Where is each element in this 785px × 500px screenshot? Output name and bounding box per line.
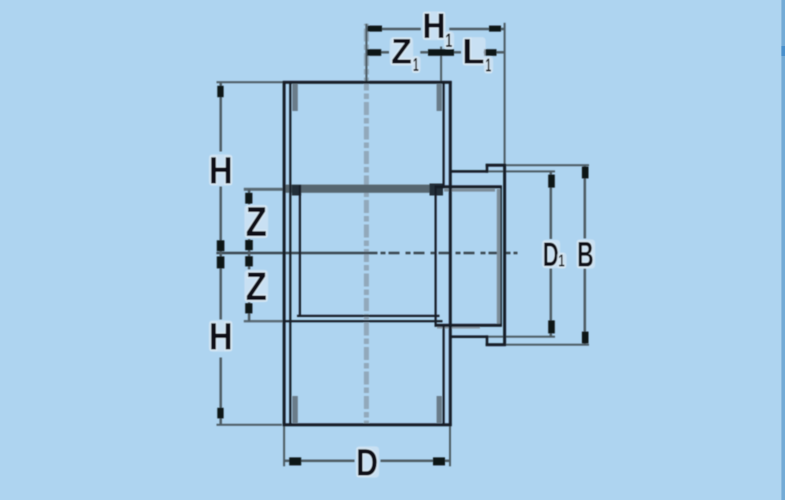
- svg-text:Z: Z: [246, 200, 267, 246]
- svg-text:D: D: [356, 442, 378, 484]
- svg-text:1: 1: [485, 55, 491, 76]
- svg-text:H: H: [209, 149, 233, 192]
- svg-text:B: B: [577, 235, 594, 274]
- svg-text:Z: Z: [246, 263, 267, 308]
- svg-text:Z: Z: [391, 33, 412, 72]
- svg-text:1: 1: [445, 29, 452, 52]
- svg-text:1: 1: [413, 55, 419, 76]
- svg-text:H: H: [423, 8, 446, 47]
- svg-text:D: D: [543, 236, 559, 274]
- svg-text:1: 1: [558, 252, 565, 271]
- svg-text:L: L: [462, 32, 484, 71]
- svg-text:H: H: [209, 315, 233, 358]
